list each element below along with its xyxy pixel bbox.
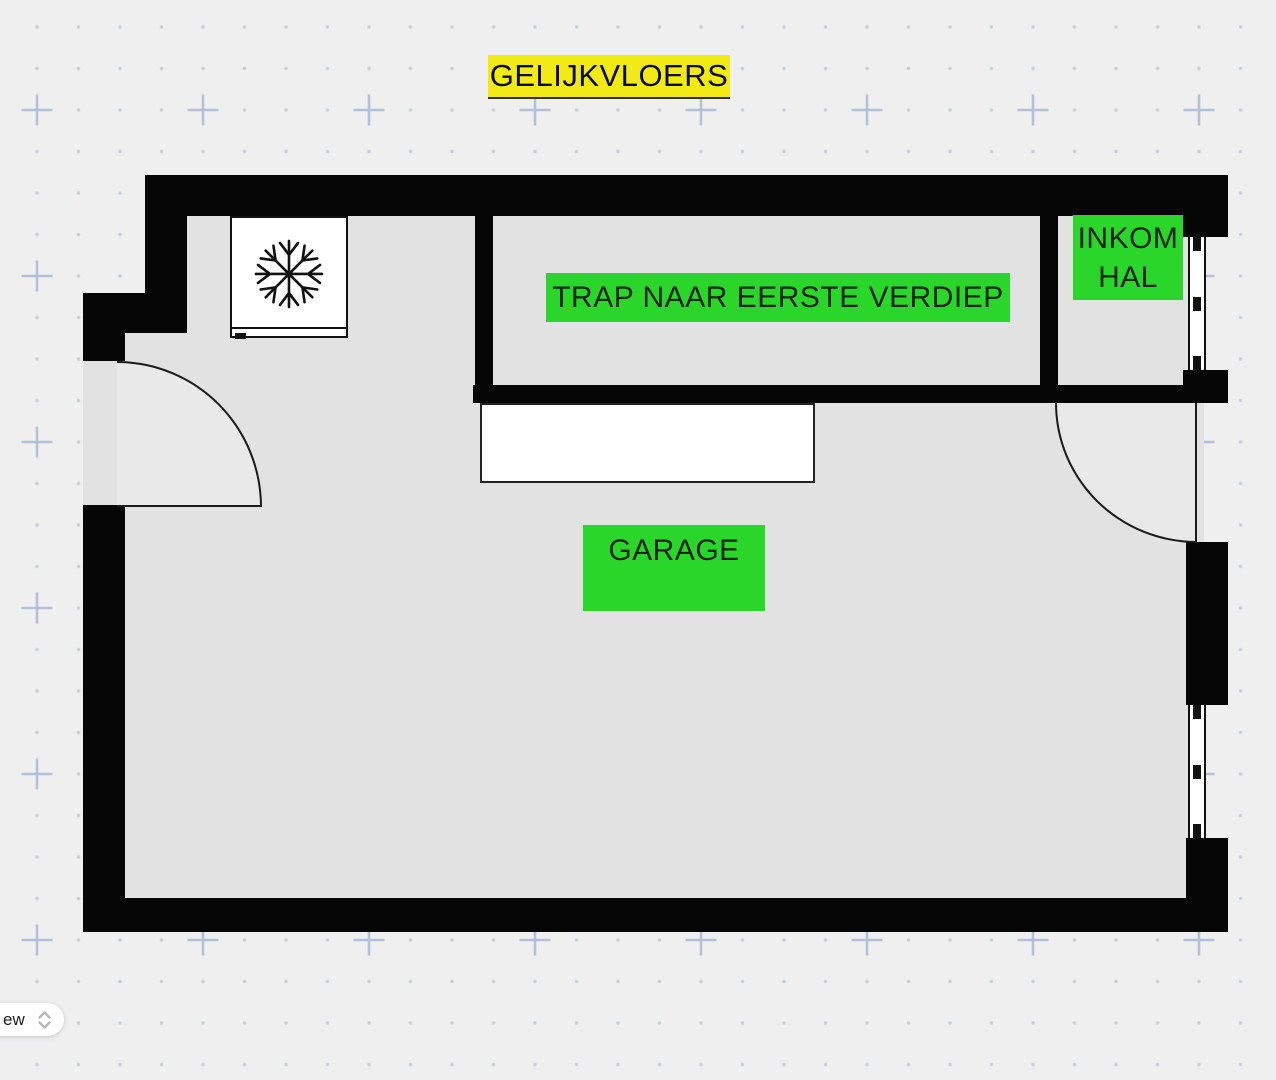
wall-stairs-bottom bbox=[473, 385, 1228, 403]
wall-left-mid bbox=[83, 333, 125, 361]
wall-right-corner bbox=[1183, 370, 1228, 403]
window-garage[interactable] bbox=[1188, 705, 1206, 838]
window-frame-mark bbox=[1193, 705, 1201, 719]
wall-stairs-left bbox=[475, 216, 493, 403]
wall-right-top bbox=[1183, 175, 1228, 237]
freezer-fixture[interactable] bbox=[230, 216, 348, 338]
wall-left-lower bbox=[83, 505, 125, 932]
room-label-hall-line2: HAL bbox=[1098, 258, 1158, 297]
window-frame-mark bbox=[1193, 356, 1201, 370]
view-selector-button[interactable]: ew bbox=[0, 1003, 64, 1036]
freezer-door-line bbox=[232, 327, 346, 329]
wall-left-upper bbox=[145, 175, 187, 293]
room-label-garage-text: GARAGE bbox=[608, 534, 739, 568]
wall-left-step bbox=[83, 293, 187, 333]
window-frame-mark bbox=[1193, 297, 1201, 311]
room-label-stairs-text: TRAP NAAR EERSTE VERDIEP bbox=[552, 281, 1004, 315]
window-frame-mark bbox=[1193, 237, 1201, 251]
room-label-garage[interactable]: GARAGE bbox=[583, 525, 765, 611]
floor-title-text: GELIJKVLOERS bbox=[490, 58, 729, 94]
room-label-entry-hall[interactable]: INKOM HAL bbox=[1073, 215, 1183, 300]
floor-plan-canvas: TRAP NAAR EERSTE VERDIEP INKOM HAL GARAG… bbox=[0, 0, 1276, 1080]
wall-top bbox=[145, 175, 1228, 216]
floor-title[interactable]: GELIJKVLOERS bbox=[488, 55, 730, 99]
room-label-stairs[interactable]: TRAP NAAR EERSTE VERDIEP bbox=[546, 273, 1010, 322]
window-entry-hall[interactable] bbox=[1188, 237, 1206, 370]
chevron-up-down-icon bbox=[36, 1009, 53, 1031]
view-selector-label: ew bbox=[3, 1010, 25, 1030]
window-frame-mark bbox=[1193, 824, 1201, 838]
wall-hall-left bbox=[1040, 216, 1058, 403]
window-frame-mark bbox=[1193, 765, 1201, 779]
snowflake-icon bbox=[251, 236, 327, 312]
freezer-handle bbox=[235, 333, 246, 339]
wall-right-bottom bbox=[1186, 838, 1228, 932]
room-label-hall-line1: INKOM bbox=[1078, 219, 1179, 258]
wall-bottom bbox=[83, 898, 1228, 932]
workbench-fixture[interactable] bbox=[480, 403, 815, 483]
wall-right-mid bbox=[1186, 542, 1228, 705]
